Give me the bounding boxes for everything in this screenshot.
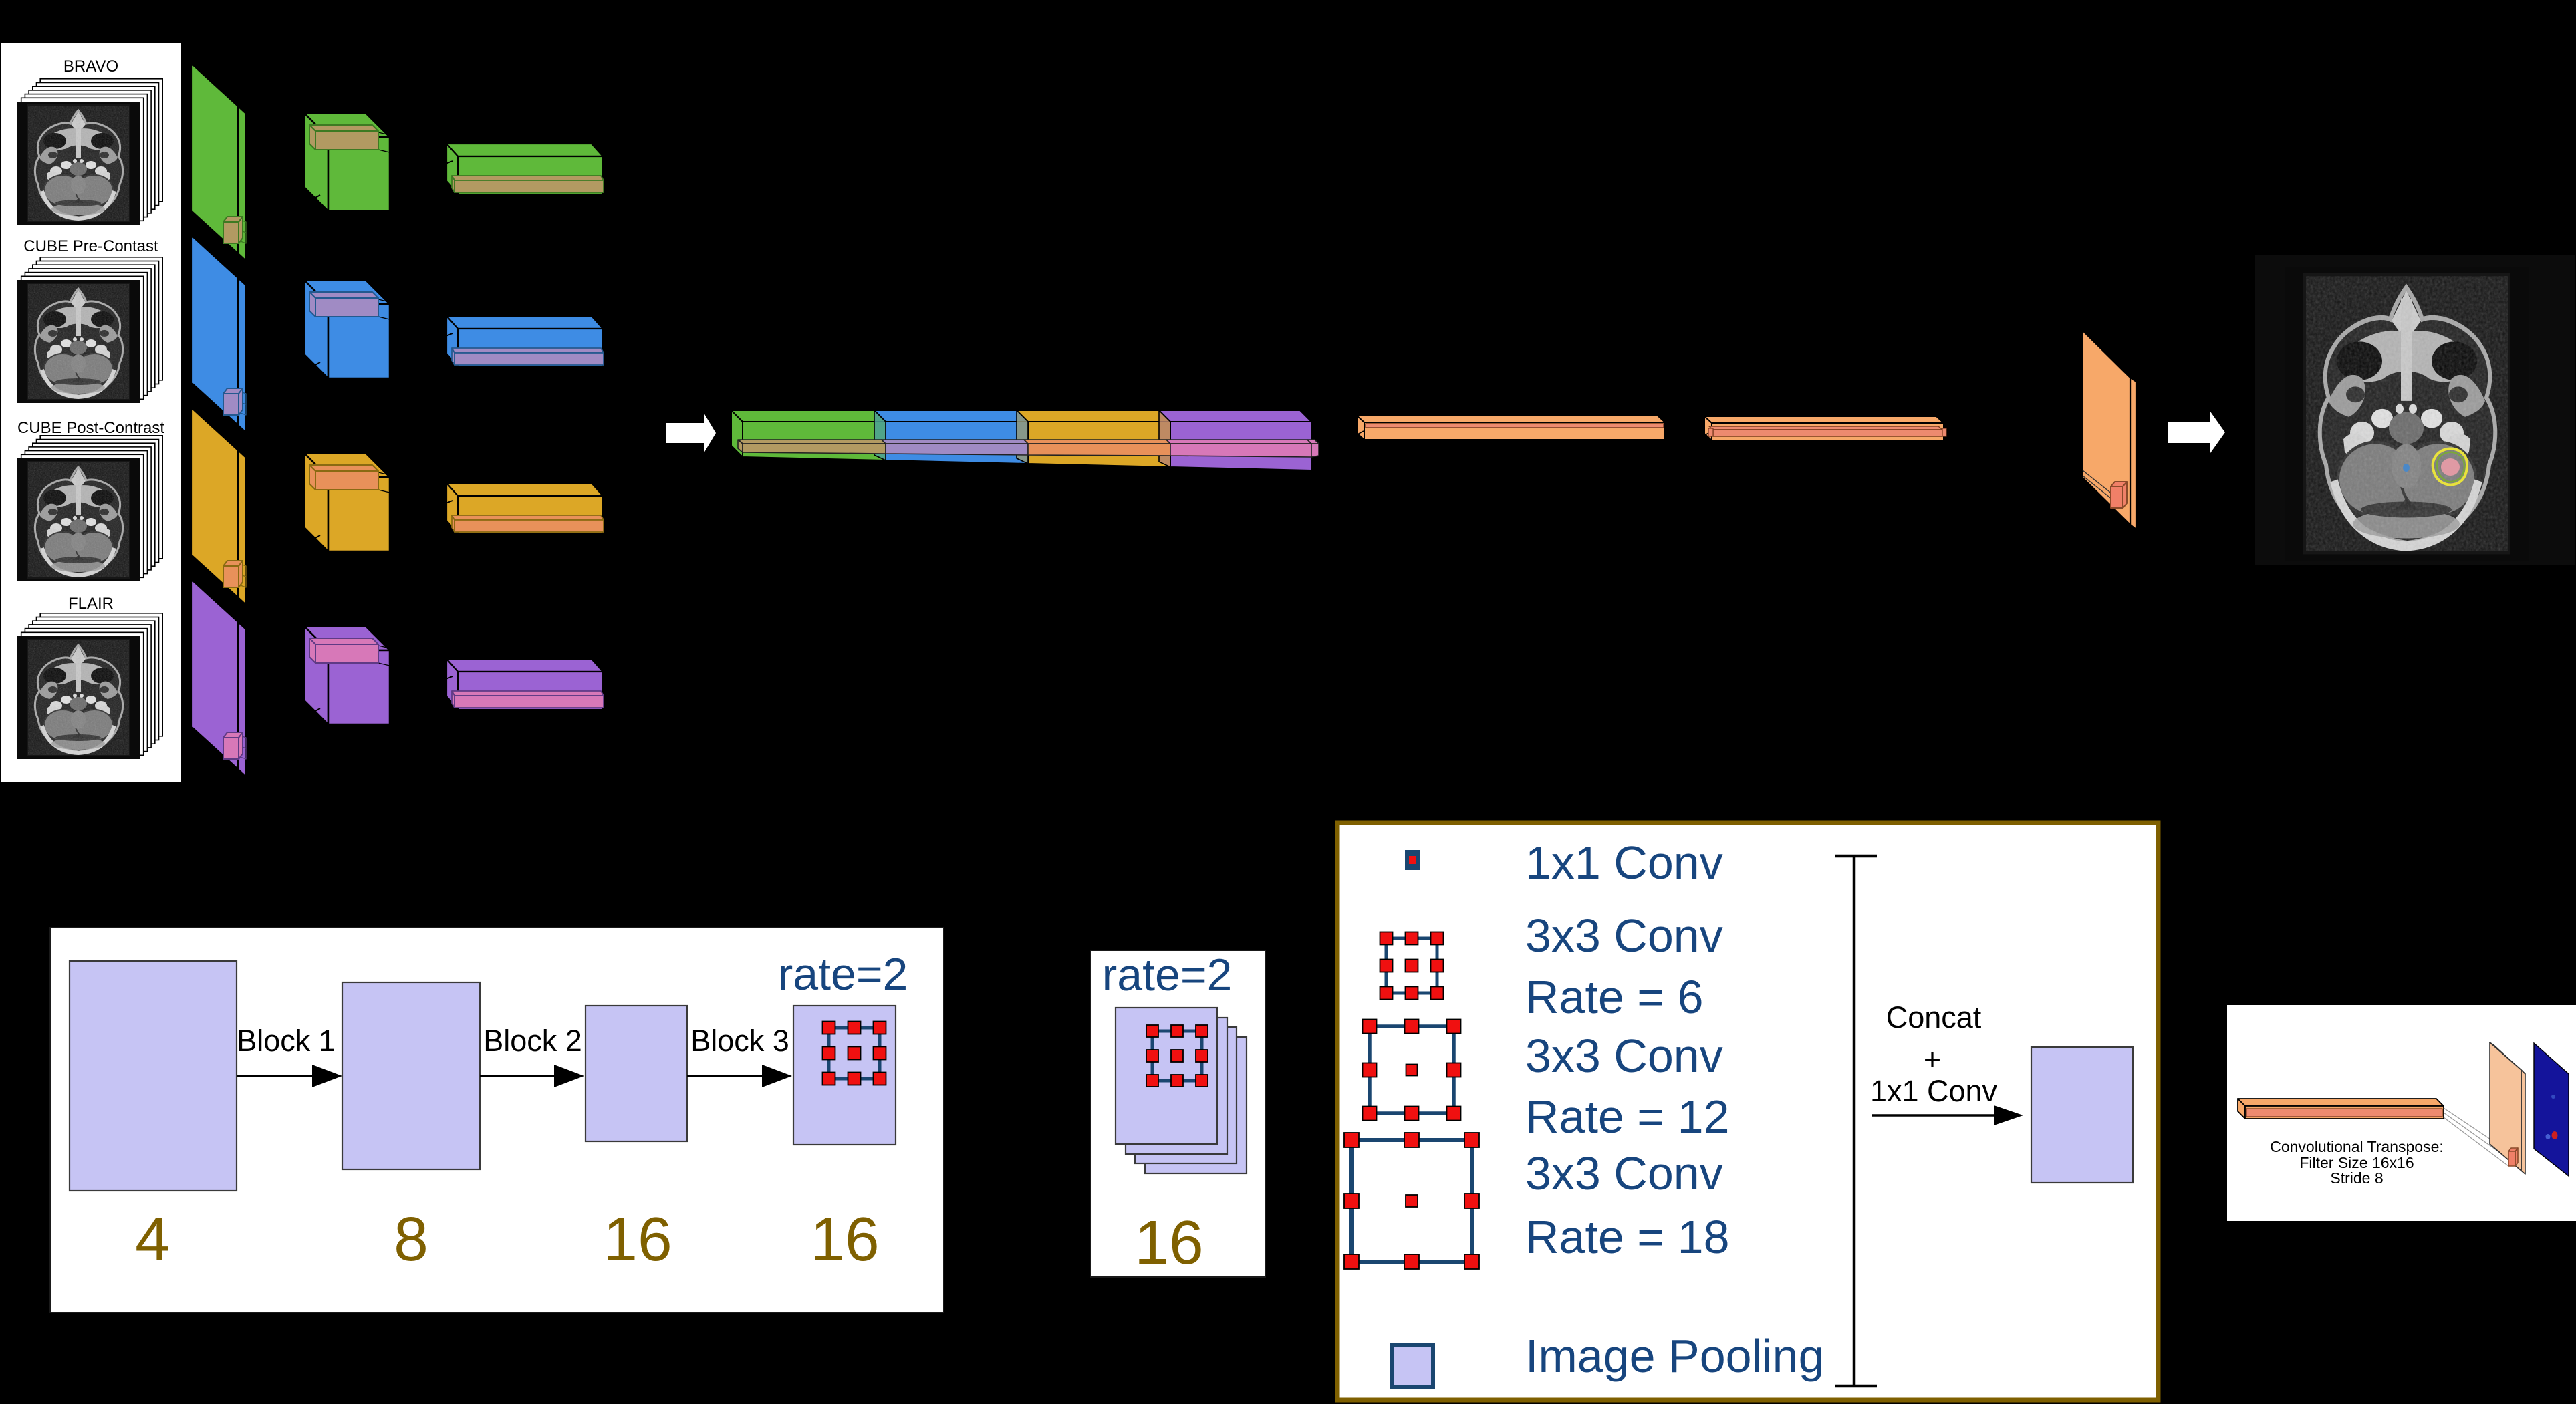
svg-text:Concat: Concat [1886, 1000, 1982, 1034]
svg-text:CUBE Post-Contrast: CUBE Post-Contrast [17, 419, 164, 437]
svg-text:rate=2: rate=2 [1102, 950, 1233, 1000]
svg-text:Block 2: Block 2 [483, 1024, 582, 1058]
svg-text:3x3 Conv: 3x3 Conv [1525, 909, 1723, 962]
svg-text:3x3 Conv: 3x3 Conv [1525, 1030, 1723, 1082]
svg-text:Image Pooling: Image Pooling [1525, 1330, 1825, 1382]
svg-text:+: + [1924, 1042, 1941, 1077]
svg-text:Block 1: Block 1 [237, 1024, 336, 1058]
svg-text:1x1 Conv: 1x1 Conv [1525, 837, 1723, 889]
svg-text:16: 16 [603, 1204, 672, 1274]
svg-text:8: 8 [394, 1204, 428, 1274]
svg-text:4: 4 [135, 1204, 170, 1274]
svg-text:rate=2: rate=2 [778, 949, 908, 1000]
svg-text:CUBE Pre-Contast: CUBE Pre-Contast [23, 237, 158, 255]
svg-text:16: 16 [1134, 1208, 1203, 1277]
svg-text:Rate = 18: Rate = 18 [1525, 1211, 1730, 1263]
svg-text:Stride 8: Stride 8 [2330, 1169, 2383, 1187]
svg-text:Block 3: Block 3 [690, 1024, 789, 1058]
svg-text:Rate = 12: Rate = 12 [1525, 1091, 1730, 1143]
svg-text:BRAVO: BRAVO [63, 57, 118, 76]
svg-text:1x1 Conv: 1x1 Conv [1870, 1074, 1998, 1108]
svg-text:Convolutional Transpose:: Convolutional Transpose: [2270, 1138, 2444, 1155]
svg-text:16: 16 [810, 1204, 879, 1274]
svg-text:Rate = 6: Rate = 6 [1525, 971, 1704, 1023]
svg-text:FLAIR: FLAIR [68, 595, 114, 613]
svg-text:3x3 Conv: 3x3 Conv [1525, 1147, 1723, 1200]
